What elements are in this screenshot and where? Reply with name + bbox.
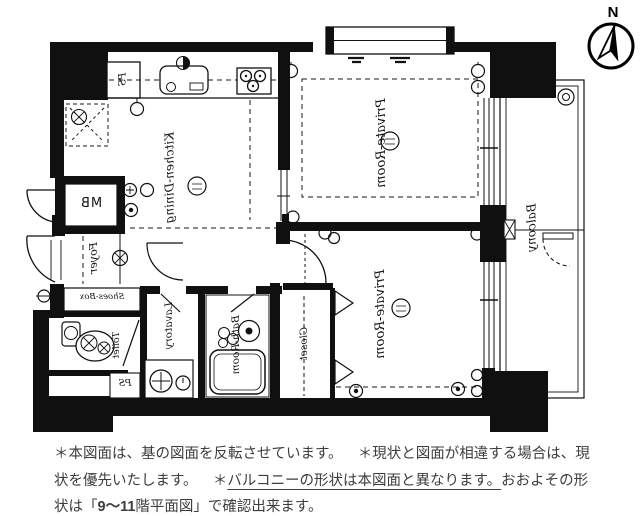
hall-door-arc: [147, 243, 183, 280]
room-label-lavatory: Lavatory: [164, 281, 176, 371]
room-label-bath-room: Bath-Room: [231, 297, 243, 393]
note-separator: [335, 446, 358, 462]
north-window: [326, 27, 454, 62]
toilet-door-leaf: [123, 320, 139, 366]
room-label-shoes-box: Shoes-Box: [62, 293, 142, 302]
closet-doors: [304, 291, 353, 396]
note-sentence-3-marker: ＊: [213, 473, 228, 489]
room-label-private-room-top: Private-Room: [375, 78, 389, 208]
note-sentence-3-underlined: バルコニーの形状は本図面と異なります。: [227, 473, 501, 489]
note-floor-range: 9～11: [98, 499, 136, 515]
note-sentence-1: ＊本図面は、基の図面を反転させています。: [54, 446, 335, 462]
entrance-door-leaf-1: [27, 190, 55, 222]
room-label-private-room-bottom: Private-Room: [374, 249, 388, 379]
room-label-closet: Closet: [299, 299, 311, 389]
bath-door-gap: [228, 286, 256, 294]
room-label-ps-lower: PS: [105, 379, 145, 389]
balcony: [500, 80, 584, 398]
toilet-fixture: [62, 322, 114, 361]
compass-needle-icon: [599, 24, 625, 62]
room-label-kitchen-dining: Kitchen-Dining: [163, 118, 176, 238]
room-label-ps-upper: PS: [118, 60, 129, 100]
compass-n-label: N: [608, 4, 619, 21]
note-sentence-3-tail-b: 階平面図」で確認出来ます。: [135, 499, 322, 515]
light-fixture-room-bottom: [392, 299, 410, 317]
balcony-drain: [558, 89, 574, 105]
room-label-balcony: Balcony: [525, 178, 538, 278]
light-fixture-dining: [188, 177, 206, 195]
emergency-hatch-arc: [543, 239, 570, 266]
compass-north-indicator: N: [584, 0, 638, 74]
floor-plan-page: Kitchen-Dining Private-Room Private-Room…: [0, 0, 640, 516]
room-label-toilet: Toilet: [112, 310, 122, 380]
note-separator: [190, 473, 213, 489]
room-label-mb: MB: [65, 197, 117, 211]
room-label-foyer: Foyer: [88, 218, 100, 298]
disclaimer-notes: ＊本図面は、基の図面を反転させています。 ＊現状と図面が相違する場合は、現状を優…: [54, 441, 598, 516]
